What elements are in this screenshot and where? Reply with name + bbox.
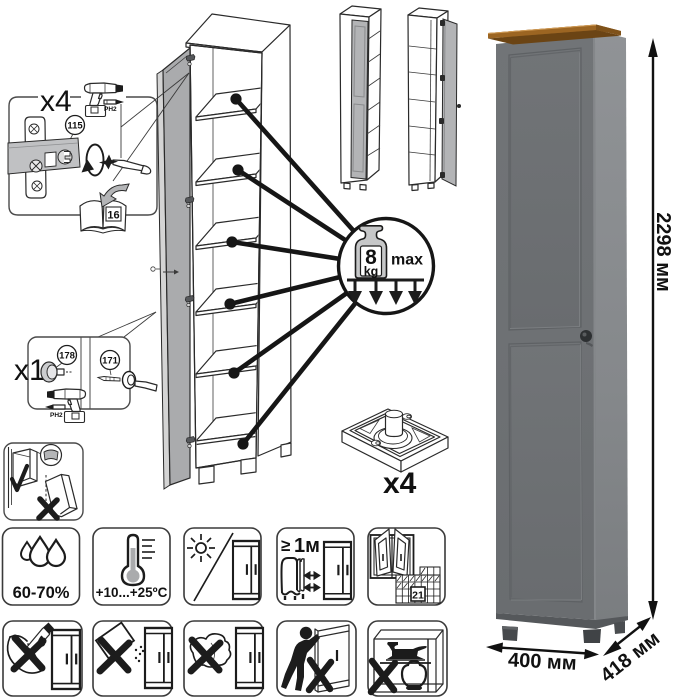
svg-text:PH2: PH2 <box>104 106 117 113</box>
svg-text:kg: kg <box>364 265 379 279</box>
svg-text:x4: x4 <box>40 85 72 118</box>
svg-text:≥: ≥ <box>281 536 290 555</box>
svg-text:max: max <box>391 252 423 269</box>
svg-text:16: 16 <box>107 210 119 222</box>
svg-text:x4: x4 <box>383 467 417 500</box>
svg-text:178: 178 <box>59 351 75 362</box>
svg-text:21: 21 <box>412 590 424 602</box>
svg-text:2298 мм: 2298 мм <box>652 212 674 292</box>
svg-text:+10...+25ºC: +10...+25ºC <box>96 585 168 600</box>
svg-text:115: 115 <box>67 121 83 132</box>
svg-text:400 мм: 400 мм <box>508 649 578 675</box>
svg-text:PH2: PH2 <box>50 412 63 419</box>
svg-text:60-70%: 60-70% <box>13 584 70 602</box>
svg-text:1м: 1м <box>294 535 320 557</box>
svg-text:171: 171 <box>102 356 119 367</box>
